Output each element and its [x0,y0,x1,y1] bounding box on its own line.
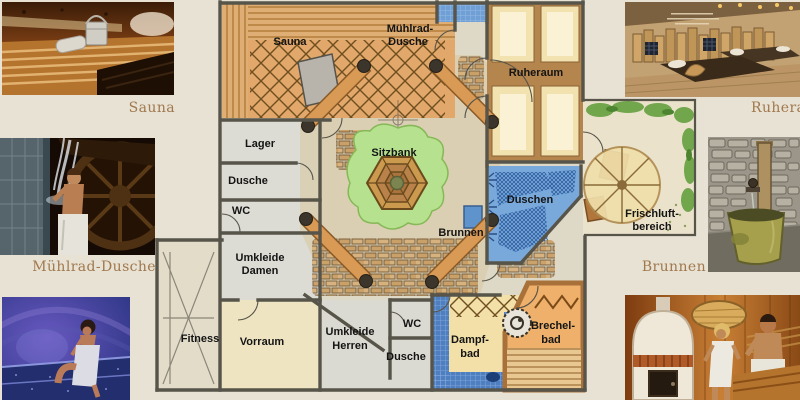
label-umkleide-damen-1: Umkleide [236,252,285,264]
label-dusche-herren: Dusche [386,351,426,363]
label-brechelbad-1: Brechel- [531,320,575,332]
label-brechelbad-2: bad [541,334,561,346]
muehlrad-dusche-caption: Mühlrad-Dusche [30,259,156,275]
label-duschen: Duschen [507,194,554,206]
muehlrad-dusche-photo [0,138,155,255]
label-frischluft-1: Frischluft- [625,208,679,220]
brunnen-photo [708,137,800,272]
brunnen-photo-art [708,137,800,272]
floor-plan: Sauna Mühlrad- Dusche Ruheraum Lager Dus… [140,0,710,400]
label-muehlrad-2: Dusche [388,36,428,48]
ruheraum-caption: Ruheraum [751,100,800,116]
room-fitness [157,240,220,392]
label-umkleide-herren-1: Umkleide [326,326,375,338]
label-wc-damen: WC [232,205,250,217]
spa-floorplan-brochure: Sauna [0,0,800,400]
label-dampfbad-1: Dampf- [451,334,489,346]
room-ruheraum [487,2,583,162]
label-sauna: Sauna [273,36,307,48]
label-wc-herren: WC [403,318,421,330]
label-dusche-damen: Dusche [228,175,268,187]
muehlrad-dusche-area [437,2,487,22]
dampfbad-photo [2,297,130,400]
label-umkleide-herren-2: Herren [332,340,368,352]
label-lager: Lager [245,138,276,150]
label-dampfbad-2: bad [460,348,480,360]
label-sitzbank: Sitzbank [371,147,417,159]
label-vorraum: Vorraum [240,336,285,348]
label-ruheraum: Ruheraum [509,67,564,79]
muehlrad-photo-art [0,138,155,255]
label-frischluft-2: bereich [632,221,671,233]
label-umkleide-damen-2: Damen [242,265,279,277]
label-fitness: Fitness [181,333,220,345]
label-muehlrad-1: Mühlrad- [387,23,434,35]
steam-photo-art [2,297,130,400]
label-brunnen: Brunnen [438,227,484,239]
